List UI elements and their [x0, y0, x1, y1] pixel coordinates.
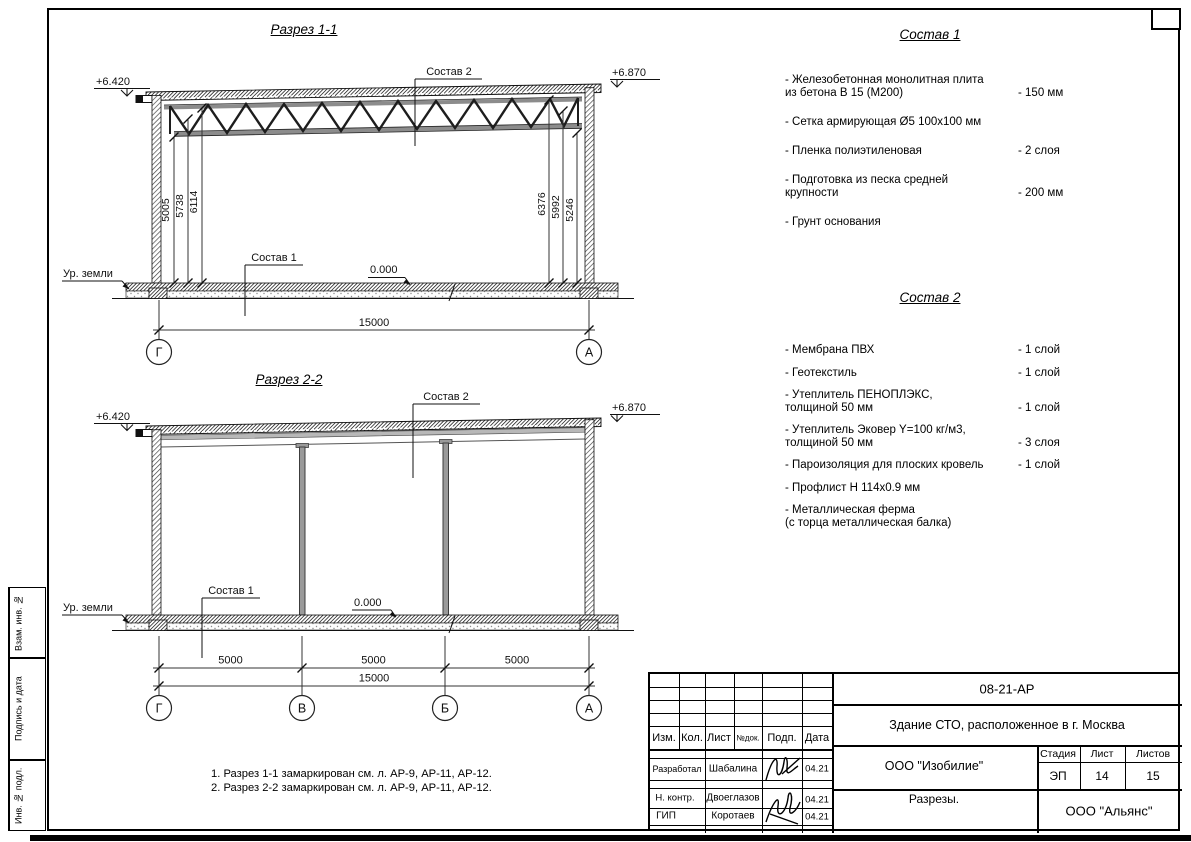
note-line: 2. Разрез 2-2 замаркирован см. л. АР-9, …	[211, 782, 492, 796]
material-name: - Геотекстиль	[785, 367, 1018, 380]
material-item: - Утеплитель ПЕНОПЛЭКС, толщиной 50 мм -…	[785, 389, 1085, 414]
dim-value: 6114	[188, 191, 200, 214]
material-value: - 200 мм	[1018, 187, 1063, 200]
material-item: - Металлическая ферма (с торца металличе…	[785, 504, 1085, 529]
dim-value: 5992	[550, 195, 562, 219]
elevation-left: +6.420	[94, 411, 150, 431]
material-item: - Пленка полиэтиленовая - 2 слоя	[785, 145, 1085, 158]
material-name: - Металлическая ферма (с торца металличе…	[785, 504, 1018, 529]
material-name: - Пленка полиэтиленовая	[785, 145, 1018, 158]
parapet-cap-end	[136, 430, 143, 437]
elevation-label: +6.870	[612, 67, 646, 79]
leader-label: Состав 1	[208, 585, 254, 597]
date-developer: 04.21	[805, 764, 829, 775]
leader-label: Состав 1	[251, 252, 297, 264]
roof-truss	[164, 97, 582, 136]
section-2-2: Состав 2 Состав 1 0.000 Ур. земли +6.420	[62, 391, 660, 721]
material-value: - 1 слой	[1018, 402, 1060, 415]
material-name: - Мембрана ПВХ	[785, 344, 1018, 357]
material-name: - Подготовка из песка средней крупности	[785, 174, 1018, 200]
parapet-cap-end	[136, 96, 143, 103]
dim-value: 5246	[564, 198, 576, 222]
name-developer: Шабалина	[709, 764, 757, 775]
elevation-label: +6.870	[612, 402, 646, 414]
material-name: - Утеплитель Эковер Y=100 кг/м3, толщино…	[785, 424, 1018, 449]
material-item: - Грунт основания	[785, 216, 1085, 229]
material-item: - Мембрана ПВХ - 1 слой	[785, 344, 1085, 357]
dim-value: 5738	[174, 194, 186, 218]
footing-right	[580, 288, 598, 299]
wall-left	[152, 430, 161, 615]
stage-value: ЭП	[1049, 769, 1066, 783]
stage-header: Стадия	[1040, 748, 1076, 760]
material-value: - 150 мм	[1018, 87, 1063, 100]
elevation-right: +6.870	[610, 67, 660, 87]
material-item: - Сетка армирующая Ø5 100x100 мм	[785, 116, 1085, 129]
material-name: - Железобетонная монолитная плита из бет…	[785, 74, 1018, 100]
column-b	[443, 443, 449, 615]
zero-label: 0.000	[370, 264, 398, 276]
grid-bubbles: Г В Б А	[147, 696, 602, 721]
leader-label: Состав 2	[426, 66, 472, 78]
material-item: - Подготовка из песка средней крупности …	[785, 174, 1085, 200]
zero-level-mark: 0.000	[368, 264, 410, 285]
material-name: - Грунт основания	[785, 216, 1018, 229]
company-name: ООО "Альянс"	[1066, 804, 1153, 819]
grid-letter: Г	[156, 346, 163, 360]
zero-label: 0.000	[354, 597, 382, 609]
sheets-total: 15	[1146, 769, 1159, 783]
grid-letter: Б	[441, 702, 449, 716]
wall-right	[585, 420, 594, 615]
floor-slab	[126, 615, 618, 623]
material-item: - Утеплитель Эковер Y=100 кг/м3, толщино…	[785, 424, 1085, 449]
elevation-label: +6.420	[96, 411, 130, 423]
sheet-name: Разрезы.	[909, 792, 959, 806]
section-1-title: Разрез 1-1	[238, 22, 370, 37]
material-name: - Профлист Н 114x0.9 мм	[785, 482, 1018, 495]
ground-level-mark: Ур. земли	[62, 602, 129, 623]
dim-value: 5000	[218, 655, 242, 667]
name-ncontrol: Двоеглазов	[706, 793, 759, 804]
project-title: Здание СТО, расположенное в г. Москва	[889, 718, 1125, 732]
col-kol: Кол.	[681, 732, 703, 744]
dim-value: 5000	[361, 655, 385, 667]
wall-left	[152, 95, 161, 283]
col-list: Лист	[707, 732, 731, 744]
date-gip: 04.21	[805, 812, 829, 823]
dim-value: 5000	[505, 655, 529, 667]
date-ncontrol: 04.21	[805, 795, 829, 806]
zero-level-mark: 0.000	[352, 597, 396, 618]
dim-value: 15000	[359, 317, 390, 329]
grid-letter: А	[585, 346, 594, 360]
leader-label: Состав 2	[423, 391, 469, 403]
design-org: ООО "Изобилие"	[885, 759, 983, 773]
col-data: Дата	[805, 732, 829, 744]
column-v	[300, 447, 306, 615]
material-item: - Железобетонная монолитная плита из бет…	[785, 74, 1085, 100]
ground-label: Ур. земли	[63, 268, 113, 280]
sostav2-list: - Мембрана ПВХ - 1 слой - Геотекстиль - …	[785, 344, 1085, 539]
dim-value: 6376	[536, 192, 548, 216]
material-item: - Профлист Н 114x0.9 мм	[785, 482, 1085, 495]
col-podp: Подп.	[767, 732, 796, 744]
drawing-sheet: { "sections": { "s1": { "title": "Разрез…	[0, 0, 1191, 842]
material-name: - Утеплитель ПЕНОПЛЭКС, толщиной 50 мм	[785, 389, 1018, 414]
leader-sostav2: Состав 2	[415, 66, 482, 146]
ceiling-line	[161, 439, 585, 447]
ground-label: Ур. земли	[63, 602, 113, 614]
wall-right	[585, 88, 594, 283]
footing-right	[580, 620, 598, 631]
section-2-title: Разрез 2-2	[223, 372, 355, 387]
material-item: - Пароизоляция для плоских кровель - 1 с…	[785, 459, 1085, 472]
grid-bubbles: Г А	[147, 340, 602, 365]
material-value: - 2 слоя	[1018, 145, 1060, 158]
ground-level-mark: Ур. земли	[62, 268, 129, 289]
elevation-label: +6.420	[96, 76, 130, 88]
material-name: - Сетка армирующая Ø5 100x100 мм	[785, 116, 1018, 129]
material-value: - 3 слоя	[1018, 437, 1060, 450]
material-value: - 1 слой	[1018, 344, 1060, 357]
elevation-left: +6.420	[94, 76, 150, 96]
title-block: 08-21-АР Здание СТО, расположенное в г. …	[648, 672, 1180, 831]
doc-code: 08-21-АР	[980, 682, 1035, 697]
elevation-right: +6.870	[610, 402, 660, 422]
col-izm: Изм.	[652, 732, 676, 744]
sostav2-title: Состав 2	[863, 290, 997, 305]
sand-bed	[126, 291, 618, 298]
sostav1-title: Состав 1	[863, 27, 997, 42]
total-dimension: 15000	[153, 300, 595, 339]
note-line: 1. Разрез 1-1 замаркирован см. л. АР-9, …	[211, 768, 492, 782]
name-gip: Коротаев	[711, 811, 754, 822]
signature-scribble	[762, 784, 802, 830]
grid-letter: В	[298, 702, 306, 716]
material-name: - Пароизоляция для плоских кровель	[785, 459, 1018, 472]
material-item: - Геотекстиль - 1 слой	[785, 367, 1085, 380]
material-value: - 1 слой	[1018, 367, 1060, 380]
footing-left	[149, 288, 167, 299]
signature-scribble	[762, 750, 802, 786]
footing-left	[149, 620, 167, 631]
grid-letter: Г	[156, 702, 163, 716]
role-ncontrol: Н. контр.	[655, 793, 694, 804]
col-ndok: №док.	[736, 734, 759, 743]
role-gip: ГИП	[656, 811, 676, 822]
sheet-number: 14	[1095, 769, 1108, 783]
notes: 1. Разрез 1-1 замаркирован см. л. АР-9, …	[211, 768, 492, 795]
material-value: - 1 слой	[1018, 459, 1060, 472]
sheets-header: Листов	[1136, 748, 1170, 760]
dim-value: 15000	[359, 673, 390, 685]
grid-letter: А	[585, 702, 594, 716]
sheet-header: Лист	[1091, 748, 1114, 760]
dim-value: 5005	[160, 198, 172, 222]
sand-bed	[126, 623, 618, 630]
role-developer: Разработал	[653, 764, 702, 774]
section-1-1: Состав 2 Состав 1 0.000 Ур. земли +6.420	[62, 66, 660, 365]
sostav1-list: - Железобетонная монолитная плита из бет…	[785, 74, 1085, 245]
